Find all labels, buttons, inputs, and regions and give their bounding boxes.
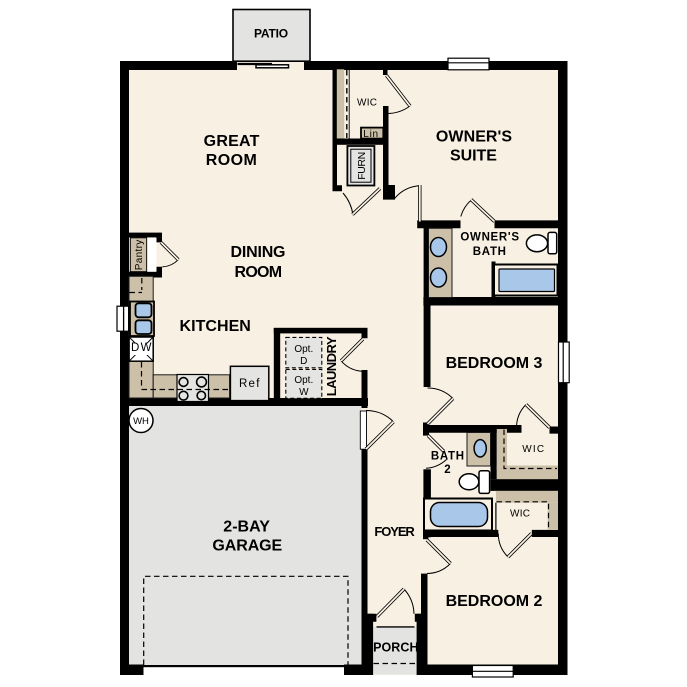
svg-text:FOYER: FOYER	[374, 524, 415, 539]
svg-text:PATIO: PATIO	[254, 27, 288, 41]
svg-text:Opt.: Opt.	[294, 344, 313, 355]
svg-text:WIC: WIC	[510, 508, 530, 519]
svg-text:PORCH: PORCH	[373, 640, 418, 654]
svg-text:BEDROOM 2: BEDROOM 2	[446, 593, 543, 610]
svg-text:OWNER'S: OWNER'S	[436, 128, 513, 145]
svg-text:DINING: DINING	[231, 244, 286, 261]
svg-text:LAUNDRY: LAUNDRY	[324, 336, 339, 396]
svg-text:Pantry: Pantry	[134, 240, 145, 271]
svg-text:ROOM: ROOM	[206, 152, 257, 169]
svg-text:Ref: Ref	[239, 378, 260, 390]
svg-text:Opt.: Opt.	[294, 375, 313, 386]
svg-text:BATH: BATH	[431, 451, 464, 463]
svg-text:2-BAY: 2-BAY	[223, 519, 270, 536]
svg-text:OWNER'S: OWNER'S	[460, 232, 519, 244]
svg-text:SUITE: SUITE	[450, 148, 497, 165]
svg-text:BEDROOM 3: BEDROOM 3	[446, 355, 543, 372]
svg-text:W: W	[299, 387, 309, 398]
svg-text:2: 2	[444, 464, 450, 476]
svg-text:GARAGE: GARAGE	[212, 538, 282, 555]
svg-text:KITCHEN: KITCHEN	[180, 318, 251, 335]
svg-text:WIC: WIC	[522, 444, 544, 455]
svg-text:D: D	[300, 356, 307, 367]
svg-text:Lin: Lin	[363, 129, 378, 140]
svg-text:BATH: BATH	[473, 246, 506, 258]
svg-text:GREAT: GREAT	[204, 133, 260, 150]
svg-text:WIC: WIC	[357, 98, 377, 109]
svg-text:WH: WH	[133, 416, 149, 427]
svg-text:DW: DW	[131, 342, 152, 354]
svg-text:ROOM: ROOM	[235, 264, 283, 281]
svg-text:FURN: FURN	[356, 152, 368, 180]
